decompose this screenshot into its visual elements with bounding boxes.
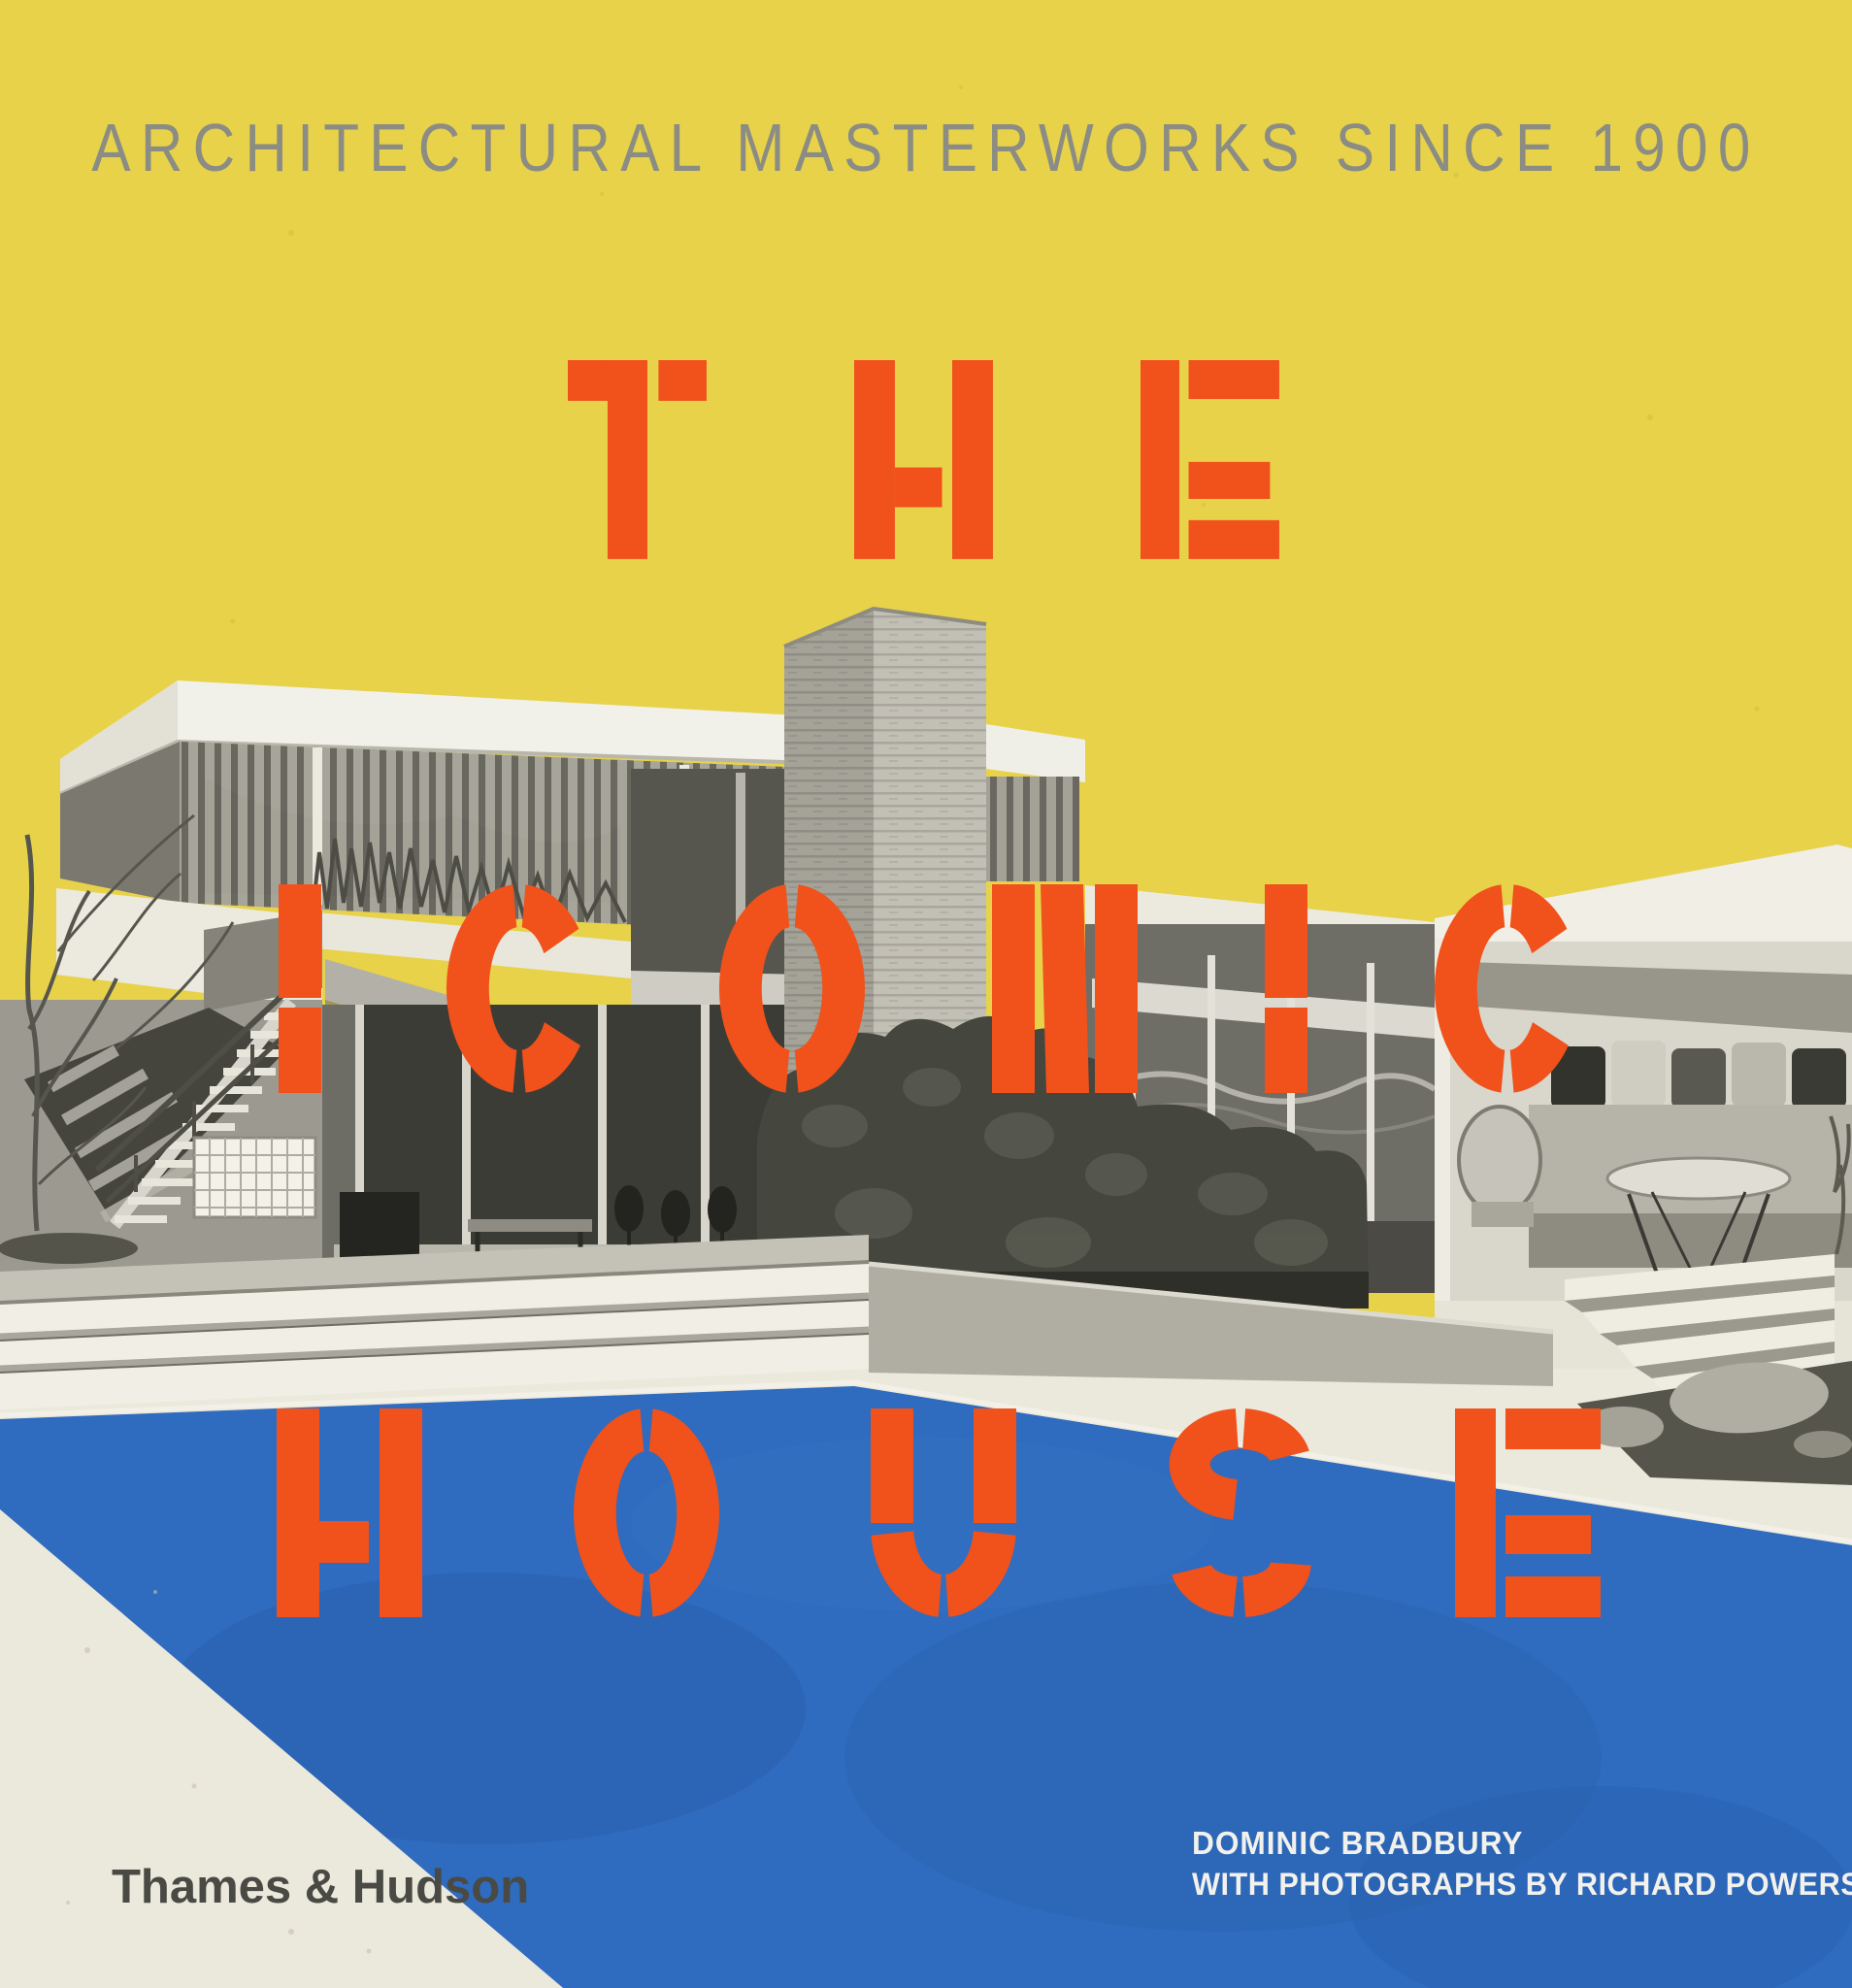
daybed-pillows [1551,1041,1846,1109]
book-cover: ARCHITECTURAL MASTERWORKS SINCE 1900 Tha… [0,0,1852,1988]
subtitle: ARCHITECTURAL MASTERWORKS SINCE 1900 [91,110,1760,185]
credit-author: DOMINIC BRADBURY [1192,1825,1523,1861]
stencil-letter-n [992,884,1138,1093]
mesh-gate [194,1138,315,1217]
cover-art: ARCHITECTURAL MASTERWORKS SINCE 1900 Tha… [0,0,1852,1988]
ground-shadow [0,1233,138,1264]
credit-photographer: WITH PHOTOGRAPHS BY RICHARD POWERS [1192,1867,1852,1902]
stencil-letter-i [279,884,321,1093]
stencil-letter-i [1265,884,1307,1093]
publisher-logo: Thames & Hudson [112,1861,529,1913]
